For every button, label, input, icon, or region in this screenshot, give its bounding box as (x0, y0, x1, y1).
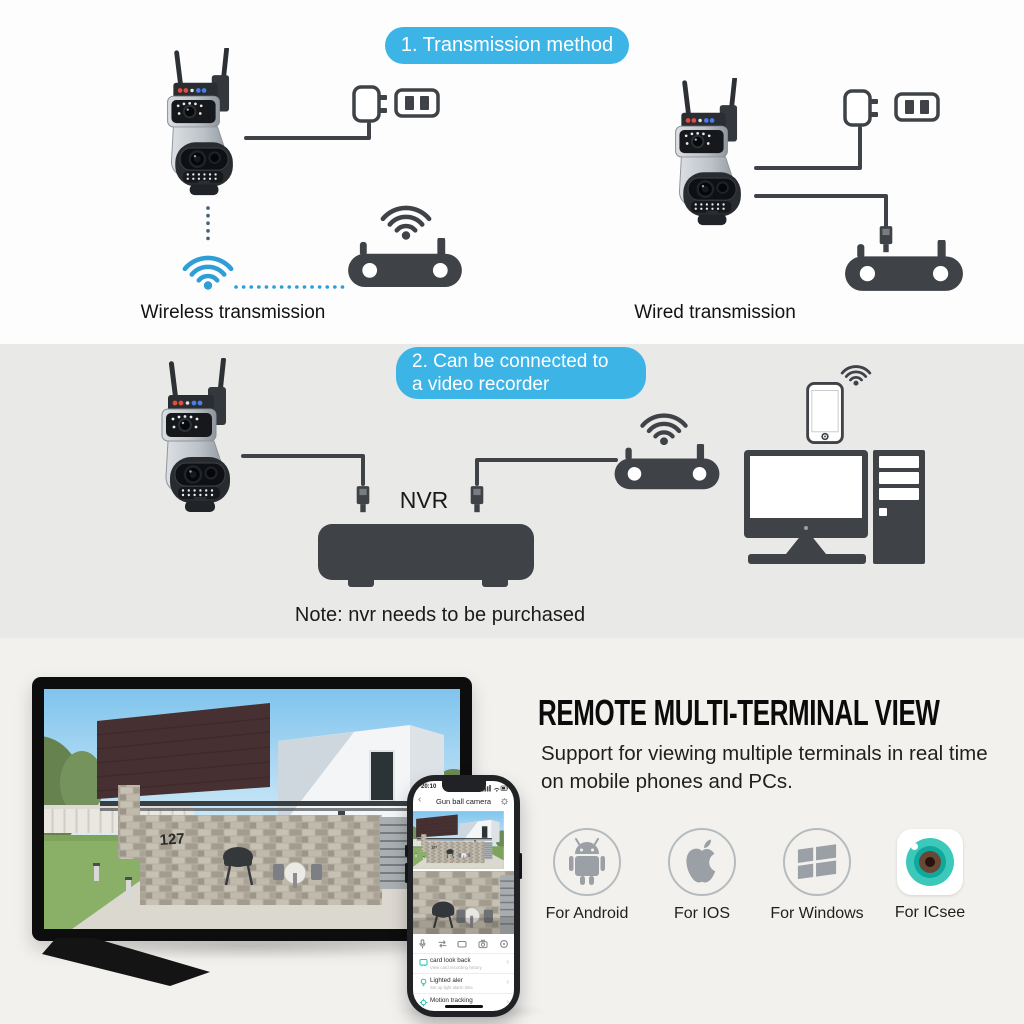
more-settings-icon[interactable] (499, 939, 509, 949)
phone-side-button (405, 845, 408, 857)
chevron-icon: › (506, 978, 509, 986)
wired-caption: Wired transmission (600, 302, 830, 324)
status-time: 20:10 (421, 784, 436, 790)
settings-gear-icon[interactable] (500, 797, 509, 806)
list-item-sub: Set up light alarm time (430, 985, 473, 990)
router-wifi-icon (636, 402, 692, 446)
nvr-box (318, 524, 534, 580)
app-controls-row (413, 936, 514, 951)
chevron-icon: › (506, 958, 509, 966)
power-socket-icon (894, 92, 940, 122)
power-socket-icon (394, 88, 440, 118)
list-item-label: Motion tracking (430, 997, 473, 1004)
router-icon (843, 240, 965, 293)
smartphone-icon (806, 382, 844, 444)
list-item-label: card look back (430, 957, 471, 964)
app-title: Gun ball camera (413, 797, 514, 806)
nvr-foot (348, 578, 374, 587)
list-item-lighted-alert[interactable]: Lighted aler Set up light alarm time › (413, 973, 514, 992)
tv-screen-house-image (44, 689, 460, 929)
camera-feed-zoom[interactable] (413, 871, 514, 934)
tower-slot (879, 472, 919, 484)
nvr-note: Note: nvr needs to be purchased (220, 604, 660, 627)
power-adapter-icon (843, 88, 879, 128)
list-item-sub: View card recording history (430, 965, 482, 970)
usb-connector-icon (354, 486, 372, 515)
platform-android: For Android (537, 828, 637, 923)
phone-mockup: 20:10 ‹ Gun ball camera (407, 775, 520, 1017)
router-icon (612, 444, 722, 491)
ptz-arrows-icon[interactable] (438, 939, 447, 949)
light-bulb-icon (419, 978, 428, 987)
mic-icon[interactable] (418, 939, 427, 949)
tower-slot (879, 456, 919, 468)
camera-illustration (666, 78, 762, 232)
platform-icsee: For ICsee (880, 828, 980, 922)
section-transmission: 1. Transmission method Wireless transmis… (0, 0, 1024, 344)
camera-capture-icon[interactable] (478, 939, 488, 949)
app-screen: 20:10 ‹ Gun ball camera (413, 781, 514, 1011)
nvr-foot (482, 578, 508, 587)
nvr-label: NVR (388, 487, 460, 514)
sd-card-icon (419, 958, 428, 967)
home-indicator (445, 1005, 483, 1009)
apple-icon (668, 828, 736, 896)
icsee-icon (897, 829, 963, 895)
list-item-card-look-back[interactable]: card look back View card recording histo… (413, 953, 514, 972)
tracking-target-icon (419, 998, 428, 1007)
platform-ios: For IOS (652, 828, 752, 923)
platform-label: For IOS (652, 905, 752, 923)
remote-view-subheading: Support for viewing multiple terminals i… (541, 740, 1003, 796)
screenshot-icon[interactable] (457, 939, 467, 949)
router-icon (346, 238, 464, 289)
promo-image: 1. Transmission method Wireless transmis… (0, 0, 1024, 1024)
tv (32, 677, 472, 941)
monitor-base (748, 554, 866, 564)
remote-view-heading: REMOTE MULTI-TERMINAL VIEW (538, 692, 939, 734)
tower-slot (879, 488, 919, 500)
router-wifi-icon (376, 194, 436, 240)
section-nvr: 2. Can be connected to a video recorder … (0, 344, 1024, 638)
monitor-logo-dot (804, 526, 808, 530)
tower-button (879, 508, 887, 516)
phone-side-button (519, 853, 522, 879)
phone-notch (442, 781, 486, 792)
power-adapter-icon (352, 84, 388, 124)
wireless-caption: Wireless transmission (118, 302, 348, 324)
list-item-label: Lighted aler (430, 977, 463, 984)
phone-side-button (405, 863, 408, 883)
wifi-signal-icon (178, 244, 238, 290)
platform-label: For Windows (767, 905, 867, 923)
camera-feed-wide[interactable] (413, 810, 514, 870)
platform-label: For ICsee (880, 904, 980, 922)
usb-connector-icon (468, 486, 486, 515)
camera-illustration (158, 48, 254, 202)
android-icon (553, 828, 621, 896)
tv-stand (40, 938, 215, 988)
platform-label: For Android (537, 905, 637, 923)
status-icons (482, 784, 508, 792)
monitor-screen (750, 456, 862, 518)
windows-icon (783, 828, 851, 896)
camera-illustration (152, 358, 252, 520)
platform-windows: For Windows (767, 828, 867, 923)
chevron-icon: › (506, 998, 509, 1006)
